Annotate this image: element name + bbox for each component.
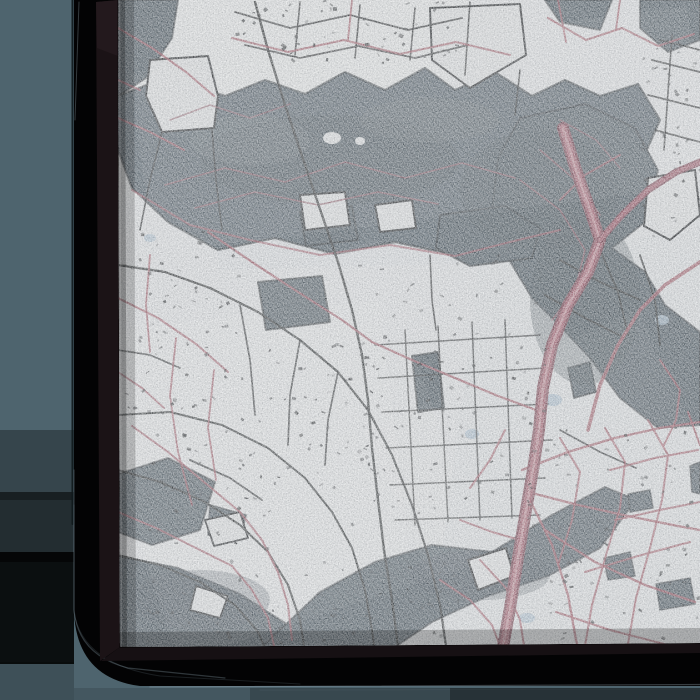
scene-svg [0,0,700,700]
floor-shade-left [74,688,250,700]
product-photo [0,0,700,700]
backdrop-shade-2 [0,492,74,562]
floor-shade-corner [0,662,74,700]
canvas-left-side-highlight [96,0,118,56]
backdrop-shade-3 [0,552,74,664]
floor-shade-right [450,688,700,700]
map-layer-grain [118,0,700,647]
canvas-left-side [96,0,120,661]
grain-1 [118,0,700,647]
backdrop-shade-1 [0,430,74,500]
floor-shade-mid [250,688,450,700]
